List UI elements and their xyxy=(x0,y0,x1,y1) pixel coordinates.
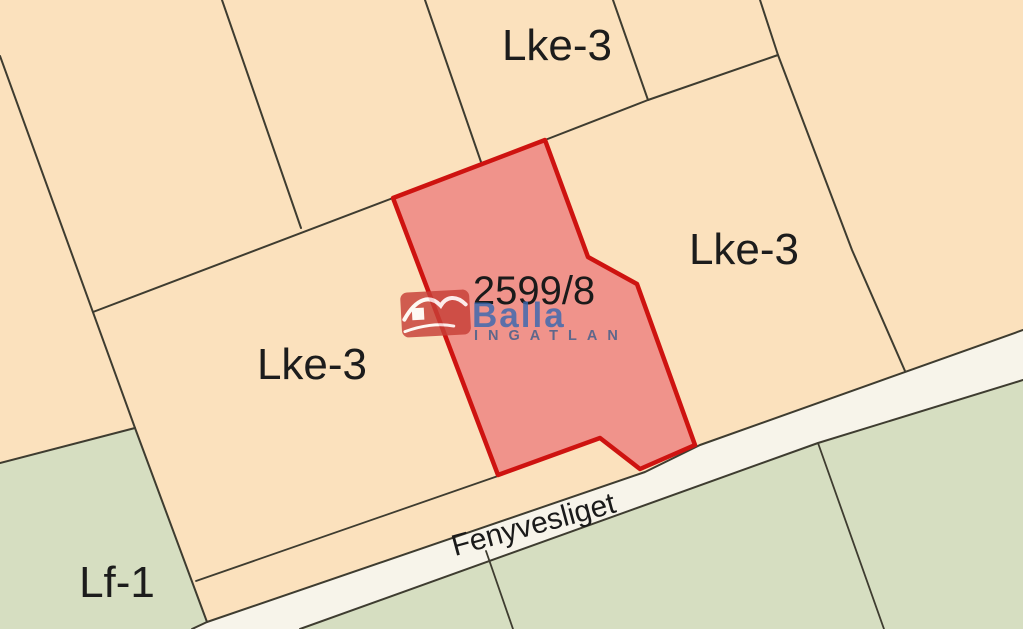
zoning-map-image[interactable]: Lke-3 Lke-3 Lke-3 Lf-1 2599/8 Fenyveslig… xyxy=(0,0,1023,629)
zone-label-right: Lke-3 xyxy=(689,225,799,274)
watermark-sub-text: INGATLAN xyxy=(474,328,628,344)
zone-label-left: Lke-3 xyxy=(257,340,367,389)
zone-label-lf1: Lf-1 xyxy=(79,558,155,607)
zone-label-top: Lke-3 xyxy=(502,21,612,70)
watermark-logo xyxy=(400,289,471,338)
